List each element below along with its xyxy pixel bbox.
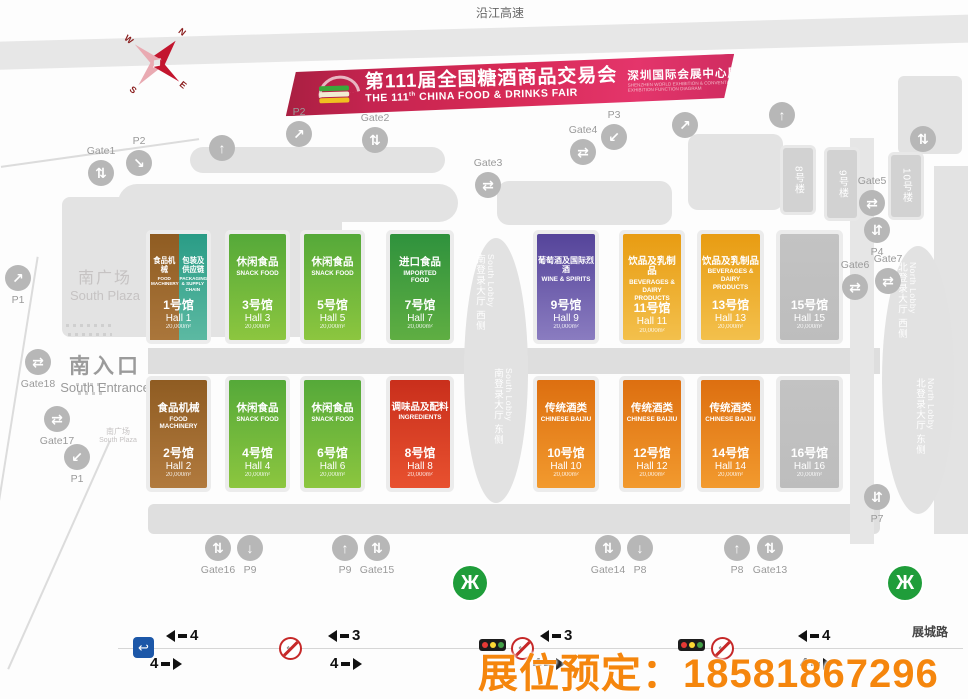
parking-p3-marker: ↙P3	[601, 124, 627, 150]
arrow-up-icon: ↑	[332, 535, 358, 561]
arrow-sw-icon: ↙	[64, 444, 90, 470]
arrow-up-icon: ↑	[769, 102, 795, 128]
booth-booking-phone: 展位预定：18581867296	[478, 641, 939, 699]
hall-3: 休闲食品SNACK FOOD 3号馆Hall 320,000m²	[229, 234, 286, 340]
hall-14: 传统酒类CHINESE BAIJIU 14号馆Hall 1420,000m²	[701, 380, 760, 488]
gate-swap-icon: ⇄	[475, 172, 501, 198]
dropoff-lane-4	[688, 134, 783, 210]
hall-16: 16号馆Hall 1620,000m²	[780, 380, 839, 488]
south-plaza-small-label: 南广场 South Plaza	[88, 426, 148, 444]
north-lobby-west-en: North Lobby	[908, 262, 918, 339]
parking-p8b-marker: ↑P8	[724, 535, 750, 561]
gate-updown-icon: ⇅	[910, 126, 936, 152]
gate-updown-icon: ⇅	[88, 160, 114, 186]
gate-updown-icon: ⇅	[595, 535, 621, 561]
gate-16-marker: ⇅Gate16	[205, 535, 231, 561]
arrow-up-icon: ↑	[724, 535, 750, 561]
arrow-down-icon: ↓	[237, 535, 263, 561]
gate-3-marker: ⇄Gate3	[475, 172, 501, 198]
gate-swap-icon: ⇄	[842, 274, 868, 300]
hall-4: 休闲食品SNACK FOOD 4号馆Hall 420,000m²	[229, 380, 286, 488]
booth-dots-1	[66, 324, 112, 337]
lane-count-west-2: 3	[328, 627, 360, 644]
gate-swap-icon: ⇄	[570, 139, 596, 165]
hall-10: 传统酒类CHINESE BAIJIU 10号馆Hall 1020,000m²	[537, 380, 595, 488]
compass-s: S	[128, 84, 139, 96]
parking-p4-marker: ⇵P4	[864, 217, 890, 243]
parking-p2b-marker: ↗P2	[286, 121, 312, 147]
gate-swap-icon: ⇄	[44, 406, 70, 432]
gate-swap-icon: ⇄	[859, 190, 885, 216]
hall-7: 进口食品IMPORTED FOOD 7号馆Hall 720,000m²	[390, 234, 450, 340]
dropoff-lane-3	[497, 181, 672, 225]
north-lobby-east-en: North Lobby	[926, 378, 936, 455]
parking-p1b-marker: ↙P1	[64, 444, 90, 470]
expressway-label: 沿江高速	[440, 4, 560, 21]
south-lobby-east-cn: 南登录大厅 东侧	[490, 368, 504, 445]
compass-needle	[111, 17, 204, 110]
gate-swap-icon: ⇄	[875, 268, 901, 294]
gate-updown-icon: ⇅	[757, 535, 783, 561]
hall-13: 饮品及乳制品BEVERAGES & DAIRY PRODUCTS 13号馆Hal…	[701, 234, 760, 340]
parking-p1-marker: ↗P1	[5, 265, 31, 291]
gate-updown-icon: ⇅	[362, 127, 388, 153]
hall-1-catA-en: FOOD MACHINERY	[150, 276, 179, 287]
hall-5: 休闲食品SNACK FOOD 5号馆Hall 520,000m²	[304, 234, 361, 340]
dropoff-lane-2	[118, 184, 458, 222]
gate-15-marker: ⇅Gate15	[364, 535, 390, 561]
compass-rose: N E S W	[111, 17, 204, 110]
gate-updown-icon: ⇅	[205, 535, 231, 561]
arrow-up-marker: ↑	[769, 102, 795, 128]
south-lobby-east-en: South Lobby	[504, 368, 514, 445]
gate-18-marker: ⇄Gate18	[25, 349, 51, 375]
hall-1-footer: 1号馆Hall 120,000m²	[150, 299, 207, 331]
building-10: 10号楼	[891, 155, 921, 217]
parking-p2-marker: ↘P2	[126, 150, 152, 176]
building-9: 9号楼	[827, 150, 857, 218]
arrow-updown-icon: ⇵	[864, 484, 890, 510]
parking-p9-marker: ↓P9	[237, 535, 263, 561]
no-uturn-sign-icon: ↩	[279, 637, 302, 660]
arrow-ne-icon: ↗	[5, 265, 31, 291]
hall-8: 调味品及配料INGREDIENTS 8号馆Hall 820,000m²	[390, 380, 450, 488]
fair-banner: 第111届全国糖酒商品交易会 THE 111th CHINA FOOD & DR…	[284, 54, 735, 117]
hall-9: 葡萄酒及国际烈酒WINE & SPIRITS 9号馆Hall 920,000m²	[537, 234, 595, 340]
gate-7-marker: ⇄Gate7	[875, 268, 901, 294]
hall-1-catB: 包装及供应链	[180, 257, 206, 275]
lane-count-west-1: 4	[166, 627, 198, 644]
south-lobby-west-cn: 南登录大厅 西侧	[472, 254, 486, 331]
zhancheng-road-label: 展城路	[895, 623, 965, 640]
gate-6-marker: ⇄Gate6	[842, 274, 868, 300]
arrow-sw-icon: ↙	[601, 124, 627, 150]
parking-p7-marker: ⇵P7	[864, 484, 890, 510]
arrow-updown-icon: ⇵	[864, 217, 890, 243]
metro-station-icon: Ж	[453, 566, 487, 600]
hall-6: 休闲食品SNACK FOOD 6号馆Hall 620,000m²	[304, 380, 361, 488]
hall-1: 食品机械 FOOD MACHINERY 包装及供应链 PACKAGING & S…	[150, 234, 207, 340]
gate-swap-icon: ⇄	[25, 349, 51, 375]
gate-updown-icon: ⇅	[364, 535, 390, 561]
arrow-updown-marker: ⇅	[910, 126, 936, 152]
arrow-ne-icon: ↗	[672, 112, 698, 138]
gate-5-marker: ⇄Gate5	[859, 190, 885, 216]
hall-1-catA: 食品机械	[151, 257, 177, 275]
gate-13-marker: ⇅Gate13	[757, 535, 783, 561]
road-edge-3	[7, 440, 111, 669]
hall-12: 传统酒类CHINESE BAIJIU 12号馆Hall 1220,000m²	[623, 380, 681, 488]
arrow-down-icon: ↓	[627, 535, 653, 561]
gate-2-marker: ⇅Gate2	[362, 127, 388, 153]
arrow-ne-marker: ↗	[672, 112, 698, 138]
arrow-ne-icon: ↗	[286, 121, 312, 147]
banner-title-en-sup: th	[409, 92, 416, 98]
hall-11: 饮品及乳制品BEVERAGES & DAIRY PRODUCTS 11号馆Hal…	[623, 234, 681, 340]
south-lobby: 南登录大厅 西侧 South Lobby 南登录大厅 东侧 South Lobb…	[464, 238, 528, 503]
north-lobby-east-cn: 北登录大厅 东侧	[912, 378, 926, 455]
metro-station-icon: Ж	[888, 566, 922, 600]
parking-p9b-marker: ↑P9	[332, 535, 358, 561]
corridor-bottom	[148, 504, 880, 534]
south-plaza-label: 南广场 South Plaza	[45, 264, 165, 303]
lane-count-east-1: 4	[150, 655, 182, 672]
parking-p8-marker: ↓P8	[627, 535, 653, 561]
arrow-se-icon: ↘	[126, 150, 152, 176]
gate-4-marker: ⇄Gate4	[570, 139, 596, 165]
lane-count-east-2: 4	[330, 655, 362, 672]
arrow-up-marker: ↑	[209, 135, 235, 161]
arrow-up-icon: ↑	[209, 135, 235, 161]
building-8: 8号楼	[783, 148, 813, 212]
hall-2: 食品机械FOOD MACHINERY 2号馆Hall 220,000m²	[150, 380, 207, 488]
fair-logo-icon	[315, 73, 358, 106]
hall-1-catB-en: PACKAGING & SUPPLY CHAIN	[179, 276, 208, 293]
gate-1-marker: ⇅Gate1	[88, 160, 114, 186]
gate-17-marker: ⇄Gate17	[44, 406, 70, 432]
hall-15: 15号馆Hall 1520,000m²	[780, 234, 839, 340]
banner-title-en-pre: THE 111	[365, 92, 409, 105]
gate-14-marker: ⇅Gate14	[595, 535, 621, 561]
south-lobby-west-en: South Lobby	[486, 254, 496, 331]
